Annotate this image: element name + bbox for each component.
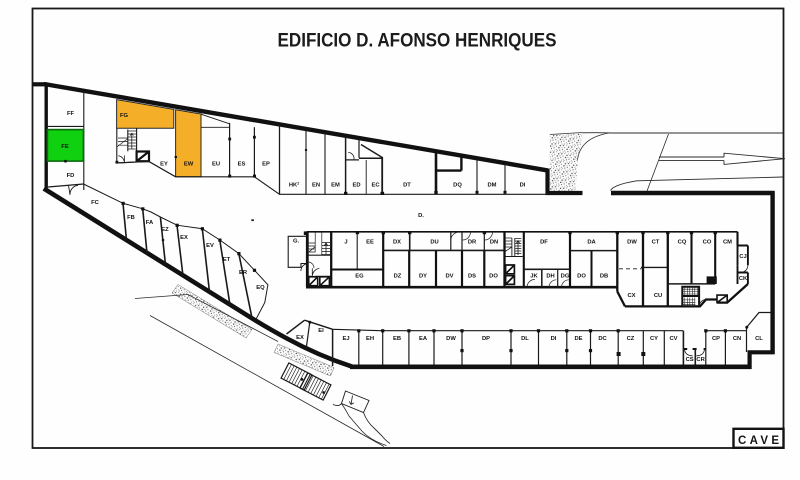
svg-text:CU: CU [654, 293, 662, 299]
svg-text:JK: JK [530, 274, 538, 280]
svg-text:FF: FF [67, 111, 75, 117]
svg-text:EP: EP [262, 162, 270, 168]
svg-text:DV: DV [445, 274, 453, 280]
svg-text:DR: DR [468, 240, 477, 246]
svg-text:DF: DF [540, 240, 548, 246]
svg-text:DY: DY [419, 274, 427, 280]
svg-text:EM: EM [331, 183, 340, 189]
svg-text:DW: DW [627, 240, 637, 246]
svg-text:CL: CL [755, 336, 763, 342]
svg-text:CN: CN [733, 336, 741, 342]
svg-text:EA: EA [419, 336, 428, 342]
svg-text:DP: DP [482, 336, 490, 342]
svg-text:DQ: DQ [453, 183, 462, 189]
svg-text:DU: DU [430, 240, 438, 246]
svg-text:DZ: DZ [394, 274, 402, 280]
svg-text:DL: DL [521, 336, 529, 342]
svg-text:ER: ER [239, 270, 248, 276]
svg-text:CT: CT [652, 240, 660, 246]
svg-text:DI: DI [520, 183, 526, 189]
svg-text:DO: DO [489, 274, 498, 280]
svg-text:EH: EH [366, 336, 374, 342]
svg-text:DC: DC [598, 336, 607, 342]
svg-text:DI: DI [551, 336, 557, 342]
svg-text:CQ: CQ [678, 240, 687, 246]
svg-text:CO: CO [703, 240, 712, 246]
svg-text:DA: DA [587, 240, 596, 246]
svg-text:FB: FB [127, 215, 135, 221]
svg-text:EV: EV [206, 243, 214, 249]
svg-text:EE: EE [366, 240, 374, 246]
svg-text:DX: DX [393, 240, 401, 246]
svg-text:D.: D. [418, 213, 424, 219]
svg-text:DE: DE [574, 336, 582, 342]
svg-text:EDIFICIO D. AFONSO HENRIQUES: EDIFICIO D. AFONSO HENRIQUES [278, 31, 557, 52]
svg-text:EX: EX [180, 235, 188, 241]
svg-text:CK: CK [739, 276, 748, 282]
svg-text:CP: CP [712, 336, 720, 342]
svg-text:FE: FE [61, 144, 69, 150]
svg-text:CX: CX [627, 293, 635, 299]
svg-text:DM: DM [487, 183, 496, 189]
svg-text:FD: FD [67, 173, 75, 179]
svg-text:EW: EW [184, 162, 194, 168]
svg-text:DW: DW [446, 336, 456, 342]
svg-text:DO: DO [577, 274, 586, 280]
svg-text:DN: DN [490, 240, 498, 246]
svg-text:CJ: CJ [739, 254, 746, 260]
svg-text:EU: EU [212, 162, 220, 168]
svg-text:EB: EB [393, 336, 401, 342]
svg-text:CZ: CZ [627, 336, 635, 342]
svg-text:EX: EX [296, 335, 304, 341]
svg-text:FG: FG [120, 113, 129, 119]
svg-text:EG: EG [355, 274, 364, 280]
svg-text:ET: ET [223, 257, 231, 263]
svg-text:CM: CM [723, 240, 732, 246]
svg-text:J: J [344, 240, 347, 246]
svg-text:EN: EN [312, 183, 320, 189]
svg-text:G.: G. [293, 239, 300, 245]
svg-text:EC: EC [371, 183, 380, 189]
svg-text:CR: CR [696, 357, 705, 363]
svg-text:DT: DT [403, 183, 411, 189]
svg-text:ES: ES [238, 162, 246, 168]
svg-text:ED: ED [352, 183, 360, 189]
svg-text:DG: DG [561, 274, 570, 280]
svg-text:DS: DS [468, 274, 476, 280]
svg-text:CY: CY [650, 336, 658, 342]
svg-text:EY: EY [160, 162, 168, 168]
svg-text:CS: CS [686, 357, 694, 363]
svg-text:FC: FC [91, 200, 100, 206]
svg-text:EQ: EQ [256, 285, 265, 291]
svg-text:EZ: EZ [161, 227, 169, 233]
svg-text:DB: DB [600, 274, 608, 280]
svg-text:EI: EI [318, 328, 324, 334]
svg-text:CV: CV [669, 336, 677, 342]
svg-text:EJ: EJ [342, 336, 349, 342]
svg-text:FA: FA [146, 220, 154, 226]
svg-text:DH: DH [546, 274, 554, 280]
